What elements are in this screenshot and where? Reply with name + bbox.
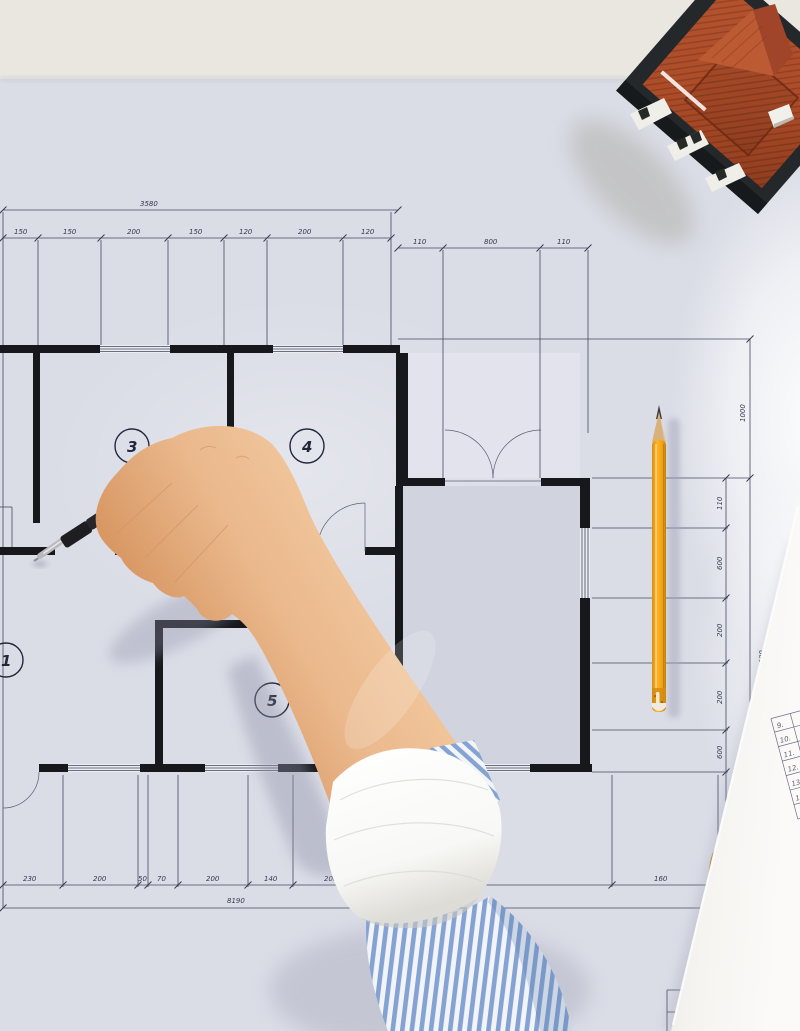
dim-label: 1000 xyxy=(739,404,747,422)
compass-tip-shadow xyxy=(33,562,47,567)
dim-label: 200 xyxy=(206,875,220,883)
pencil-end-speckle xyxy=(661,701,663,703)
dim-label: 150 xyxy=(14,228,28,236)
cuff xyxy=(326,748,502,923)
dim-label: 50 xyxy=(138,875,147,883)
room-number: 3 xyxy=(127,438,137,456)
dim-label: 800 xyxy=(484,238,498,246)
dim-label: 230 xyxy=(23,875,37,883)
dim-label: 200 xyxy=(298,228,312,236)
dim-label: 3580 xyxy=(140,200,158,208)
pencil xyxy=(652,405,666,712)
dim-label: 200 xyxy=(127,228,141,236)
dim-label: 200 xyxy=(716,690,724,704)
photo-scene: 3580 150 150 200 150 120 200 120 110 800… xyxy=(0,0,800,1031)
window-bottom-1 xyxy=(68,764,140,772)
dim-label: 8190 xyxy=(227,897,245,905)
dim-label: 200 xyxy=(93,875,107,883)
room-number: 4 xyxy=(301,438,312,456)
window-top-1 xyxy=(100,345,170,353)
scene-svg: 3580 150 150 200 150 120 200 120 110 800… xyxy=(0,0,800,1031)
window-top-2 xyxy=(273,345,343,353)
dim-label: 600 xyxy=(716,556,724,570)
dim-label: 600 xyxy=(716,745,724,759)
dim-label: 160 xyxy=(654,875,668,883)
porch-fill xyxy=(404,353,580,478)
dim-label: 150 xyxy=(189,228,203,236)
room-number: 1 xyxy=(1,652,11,670)
dim-label: 120 xyxy=(361,228,375,236)
pencil-end-speckle xyxy=(654,695,656,697)
dim-label: 140 xyxy=(264,875,278,883)
dim-label: 200 xyxy=(716,623,724,637)
window-right xyxy=(580,528,590,598)
dim-label: 110 xyxy=(413,238,427,246)
dim-label: 150 xyxy=(63,228,77,236)
dim-label: 110 xyxy=(716,496,724,510)
pencil-shadow xyxy=(668,418,680,718)
dim-label: 120 xyxy=(239,228,253,236)
dim-label: 70 xyxy=(157,875,166,883)
note-row-number: 13. xyxy=(791,778,800,789)
dim-label: 110 xyxy=(557,238,571,246)
